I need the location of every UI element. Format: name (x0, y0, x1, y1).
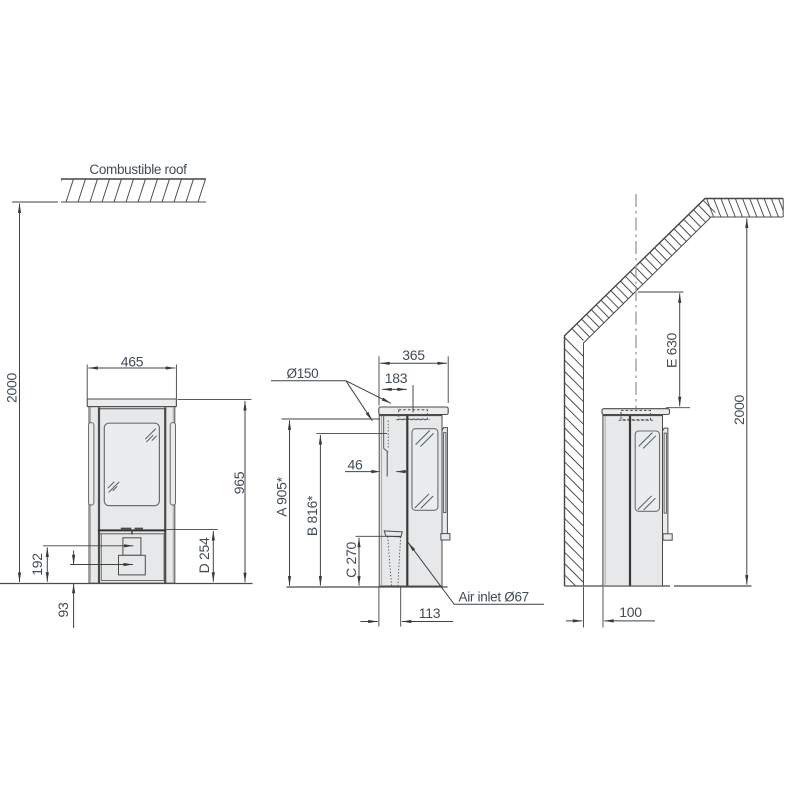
svg-text:2000: 2000 (731, 395, 747, 425)
svg-text:46: 46 (348, 456, 363, 472)
svg-text:192: 192 (29, 553, 45, 576)
svg-text:Combustible roof: Combustible roof (89, 162, 187, 177)
svg-text:365: 365 (402, 347, 425, 363)
svg-text:2000: 2000 (4, 373, 20, 403)
svg-text:100: 100 (619, 604, 642, 620)
svg-text:C 270: C 270 (343, 542, 359, 578)
svg-text:93: 93 (55, 602, 71, 617)
svg-text:965: 965 (231, 471, 247, 494)
svg-text:Air inlet Ø67: Air inlet Ø67 (459, 590, 529, 605)
svg-text:B 816*: B 816* (304, 495, 320, 536)
svg-text:113: 113 (419, 605, 441, 621)
svg-text:Ø150: Ø150 (287, 366, 319, 381)
svg-text:A 905*: A 905* (274, 476, 290, 516)
svg-text:465: 465 (121, 353, 144, 369)
svg-text:E 630: E 630 (664, 332, 680, 368)
svg-text:D 254: D 254 (196, 537, 212, 573)
svg-text:183: 183 (385, 370, 408, 386)
